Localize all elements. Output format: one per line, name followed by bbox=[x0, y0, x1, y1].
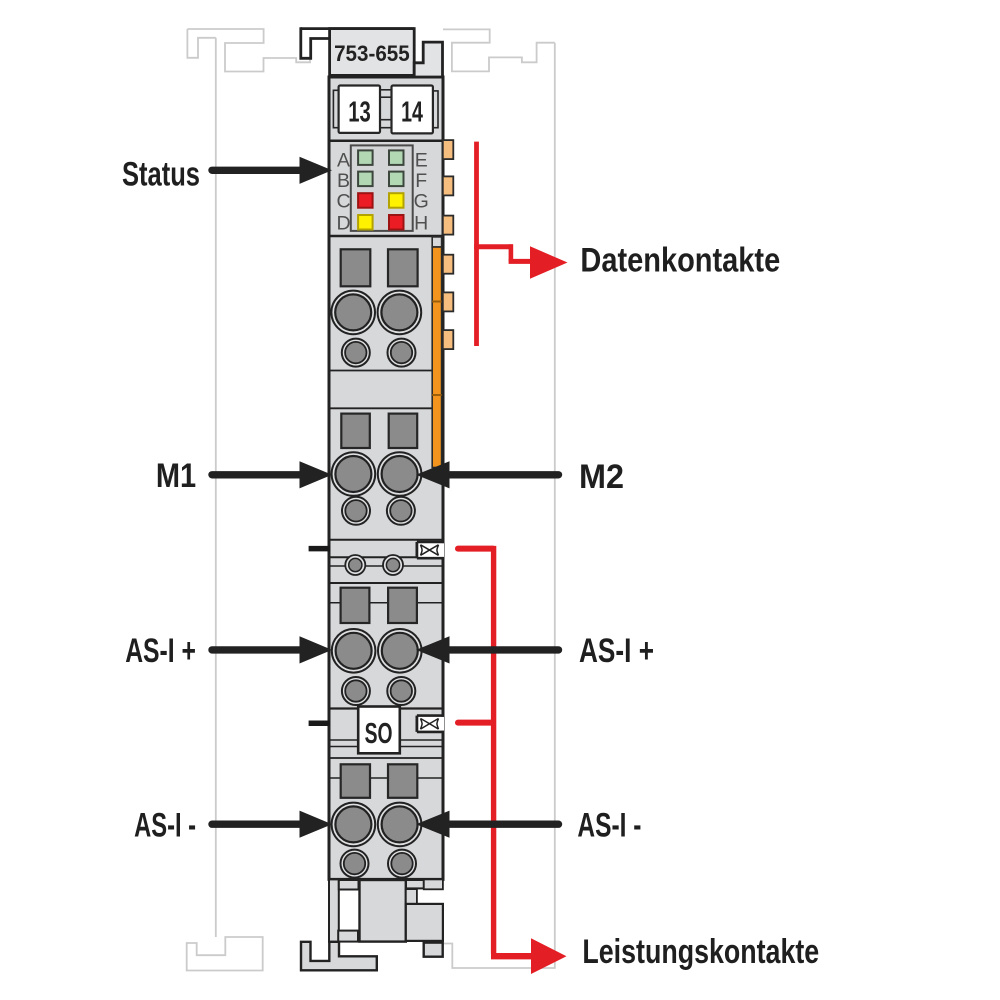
svg-text:C: C bbox=[336, 191, 350, 213]
svg-text:Status: Status bbox=[122, 156, 200, 194]
svg-text:Leistungskontakte: Leistungskontakte bbox=[582, 933, 819, 971]
svg-text:AS-I +: AS-I + bbox=[579, 632, 654, 670]
svg-text:G: G bbox=[414, 191, 429, 213]
svg-text:Datenkontakte: Datenkontakte bbox=[580, 242, 780, 280]
svg-text:13: 13 bbox=[348, 96, 371, 128]
svg-text:F: F bbox=[415, 170, 427, 192]
svg-text:D: D bbox=[336, 213, 350, 235]
svg-text:AS-I +: AS-I + bbox=[125, 632, 196, 670]
svg-text:14: 14 bbox=[401, 96, 423, 128]
svg-text:AS-I -: AS-I - bbox=[134, 806, 196, 844]
svg-text:AS-I -: AS-I - bbox=[577, 806, 641, 844]
svg-text:H: H bbox=[414, 213, 428, 235]
svg-text:E: E bbox=[415, 149, 428, 171]
svg-text:B: B bbox=[337, 170, 350, 192]
svg-text:753-655: 753-655 bbox=[334, 41, 410, 66]
svg-text:M1: M1 bbox=[156, 457, 196, 495]
svg-text:A: A bbox=[337, 149, 350, 171]
svg-text:SO: SO bbox=[365, 718, 393, 750]
svg-text:M2: M2 bbox=[579, 458, 624, 496]
